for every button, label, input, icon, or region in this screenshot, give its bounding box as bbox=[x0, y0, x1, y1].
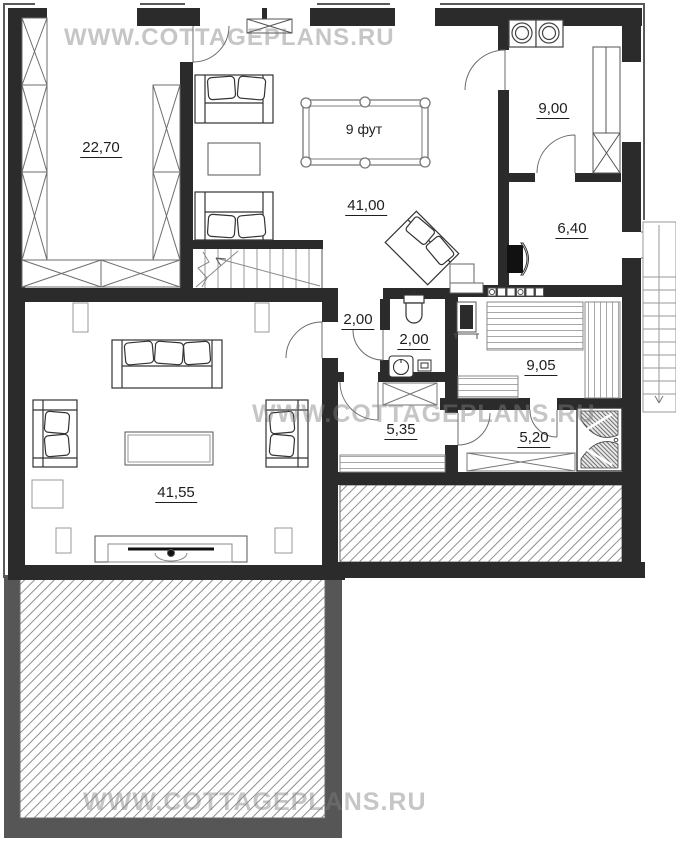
room-area-label-shower: 5,20 bbox=[517, 429, 550, 446]
room-area-label-living: 41,55 bbox=[155, 484, 197, 501]
sauna-bench bbox=[585, 302, 620, 398]
hall-side-table bbox=[450, 264, 483, 293]
shower-bench bbox=[467, 453, 575, 471]
terrace-hatch bbox=[340, 485, 622, 562]
living-coffee-table bbox=[125, 432, 213, 465]
room-area-label-wc: 2,00 bbox=[397, 331, 430, 348]
billiard-table-label: 9 фут bbox=[346, 121, 382, 137]
washbasin bbox=[389, 356, 413, 377]
door-opening bbox=[535, 173, 575, 182]
changing-bench bbox=[340, 455, 445, 472]
floor-plan: 22,70 41,00 9,00 6,40 2,00 2,00 9,05 5,3… bbox=[0, 0, 676, 843]
room-area-label-sauna: 9,05 bbox=[524, 357, 557, 374]
laundry-wardrobe bbox=[593, 47, 620, 173]
door-opening bbox=[498, 50, 509, 90]
door-opening bbox=[621, 232, 642, 258]
room-area-label-billiard-hall: 41,00 bbox=[345, 197, 387, 214]
door-opening bbox=[322, 322, 338, 358]
terrace-strip bbox=[340, 485, 622, 562]
room-area-label-wardrobe: 22,70 bbox=[80, 139, 122, 156]
room-area-label-furnace: 6,40 bbox=[555, 220, 588, 237]
window-opening bbox=[395, 7, 435, 27]
hall-loveseat-rotated bbox=[385, 211, 459, 285]
furnace-stove bbox=[507, 243, 529, 275]
hall-coffee-table bbox=[208, 143, 260, 175]
door-arc bbox=[286, 322, 322, 358]
toilet bbox=[404, 291, 424, 323]
door-arc bbox=[537, 135, 575, 173]
terrace-hatch bbox=[20, 578, 325, 818]
watermark-middle: WWW.COTTAGEPLANS.RU bbox=[252, 400, 596, 429]
window-opening bbox=[621, 62, 642, 142]
exterior-staircase bbox=[643, 222, 676, 412]
washing-machines bbox=[509, 20, 563, 47]
living-armchair-left bbox=[33, 400, 77, 467]
watermark-bottom: WWW.COTTAGEPLANS.RU bbox=[83, 788, 427, 817]
room-area-label-laundry: 9,00 bbox=[536, 100, 569, 117]
sauna-bench bbox=[487, 302, 583, 350]
watermark-top: WWW.COTTAGEPLANS.RU bbox=[64, 24, 395, 52]
living-sofa bbox=[112, 340, 222, 388]
wc-cabinet bbox=[418, 360, 431, 371]
door-opening bbox=[380, 330, 390, 360]
room-area-label-hallway: 2,00 bbox=[341, 311, 374, 328]
hall-sofa-bottom bbox=[195, 192, 273, 240]
door-arc bbox=[353, 330, 383, 360]
tv-stand bbox=[95, 536, 247, 562]
staircase bbox=[196, 249, 322, 288]
sauna-bench bbox=[458, 376, 518, 398]
sauna-benches bbox=[458, 302, 620, 398]
hall-sofa-top bbox=[195, 75, 273, 123]
